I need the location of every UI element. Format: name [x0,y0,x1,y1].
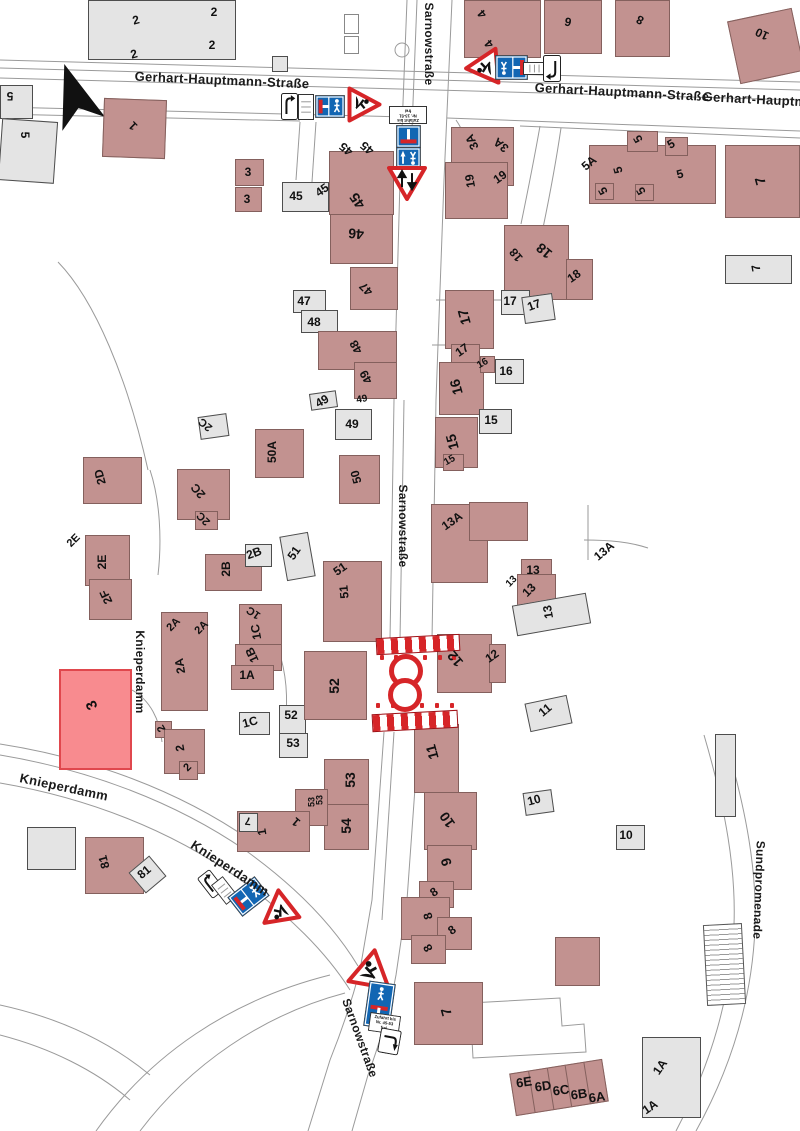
building-number-label: 45 [337,140,355,158]
building-number-label: 15 [443,433,461,452]
building-number-label: 54 [339,818,353,834]
building-number-label: 8 [421,911,434,921]
building-number-label: 12 [445,649,466,670]
street-name-label: Sarnowstraße [340,997,380,1079]
building-number-label: 5 [634,185,648,197]
building-number-label: 2E [96,555,108,570]
building-number-label: 9 [563,15,572,28]
building-number-label: 8 [446,923,458,937]
building-number-label: 9 [438,856,454,867]
building-number-label: 2A [165,616,183,634]
building-number-label: 4 [475,8,488,21]
building-number-label: 50 [348,469,363,485]
building-number-label: 2 [156,723,169,734]
building-number-label: 2C [197,415,215,432]
building-number-label: 5 [665,137,677,151]
building-number-label: 15 [484,414,497,426]
building-number-label: 17 [503,295,516,307]
building-number-label: 7 [752,175,768,186]
building-number-label: 2 [209,39,216,51]
building-number-label: 6E [515,1074,533,1089]
building-number-label: 2C [188,481,207,500]
street-name-label: Knieperdamm [19,771,110,802]
building-number-label: 8 [634,13,645,27]
building-number-label: 1 [290,815,303,828]
building-number-label: 48 [347,338,364,356]
construction-site-map: Zufahrt bisNr. 13-51frei Zufahrt bisNr. … [0,0,800,1131]
building-number-label: 5 [675,167,685,180]
building-number-label: 51 [337,585,350,599]
street-name-label: Knieperdamm [134,630,146,713]
building-number-label: 6C [552,1082,570,1097]
building-number-label: 18 [565,267,583,284]
building-number-label: 52 [327,678,341,694]
building-number-label: 17 [526,297,543,313]
building-number-label: 49 [357,368,374,386]
street-name-label: Sarnowstraße [423,3,435,86]
building-number-label: 2 [174,744,187,753]
street-name-label: Gerhart-Hauptmann-Straße [134,70,309,91]
building-number-label: 13A [440,510,465,532]
building-number-label: 45 [347,191,367,212]
building-number-label: 15 [443,454,458,468]
building-number-label: 8 [421,942,435,954]
building-number-label: 48 [307,316,320,328]
building-number-label: 53 [343,772,357,788]
street-name-label: Gerhart-Hauptmann-Straße [702,90,800,112]
building-number-label: 5 [596,185,610,197]
building-number-label: 13A [592,539,617,562]
building-number-label: 49 [356,394,369,406]
building-number-label: 18 [507,246,525,264]
building-number-label: 13 [505,575,520,590]
building-number-label: 2 [131,13,141,26]
building-number-label: 3A [463,133,480,152]
building-number-label: 2 [129,47,139,60]
building-number-label: 52 [284,709,297,721]
building-number-label: 2B [245,545,264,562]
building-number-label: 1A [239,669,254,681]
building-number-label: 81 [96,854,111,870]
building-number-label: 2 [211,6,218,18]
building-number-label: 46 [348,226,365,241]
building-number-label: 53 [286,737,299,749]
building-number-label: 19 [463,173,477,188]
building-number-label: 5A [579,153,598,172]
building-number-label: 5 [611,165,624,175]
building-number-label: 18 [534,241,555,262]
building-number-label: 1A [651,1057,670,1076]
building-number-label: 3 [245,166,252,178]
building-number-label: 17 [455,308,473,327]
building-number-label: 1C [249,623,263,640]
building-number-label: 13 [520,581,538,599]
building-number-label: 6A [588,1089,606,1104]
building-number-label: 50A [266,441,278,463]
street-name-label: Sarnowstraße [397,485,409,568]
building-number-label: 17 [453,341,471,358]
building-number-label: 1C [245,603,263,620]
labels-layer: 2222449810551334545454545464747484849494… [0,0,800,1131]
building-number-label: 5 [19,132,31,139]
building-number-label: 11 [423,743,440,761]
building-number-label: 3 [244,193,251,205]
building-number-label: 2B [220,561,232,576]
building-number-label: 49 [345,418,358,430]
building-number-label: 7 [438,1006,454,1017]
building-number-label: 2E [65,532,82,549]
building-number-label: 47 [297,295,310,307]
building-number-label: 6B [570,1086,588,1101]
building-number-label: 19 [491,168,509,185]
building-number-label: 1C [241,714,259,730]
building-number-label: 81 [135,863,153,881]
building-number-label: 7 [750,264,763,273]
building-number-label: 2 [182,762,194,774]
building-number-label: 13 [541,604,555,619]
building-number-label: 53 [316,795,325,805]
street-name-label: Knieperdamm [189,838,272,898]
building-number-label: 10 [526,792,542,807]
building-number-label: 5 [631,133,645,145]
building-number-label: 8 [428,885,440,899]
building-number-label: 45 [313,181,331,198]
building-number-label: 47 [357,280,375,298]
building-number-label: 1B [243,646,260,665]
building-number-label: 45 [289,190,302,202]
building-number-label: 11 [536,701,553,718]
building-number-label: 2A [173,657,187,674]
building-number-label: 2A [193,619,211,637]
building-number-label: 51 [285,544,302,562]
building-number-label: 49 [313,392,331,409]
building-number-label: 13 [526,564,539,576]
building-number-label: 2F [98,588,115,606]
building-number-label: 3A [491,135,510,154]
building-number-label: 2C [195,509,213,527]
building-number-label: 10 [437,810,457,831]
building-number-label: 1 [256,828,269,837]
street-name-label: Sundpromenade [751,841,766,940]
building-number-label: 10 [619,829,632,841]
building-number-label: 6D [534,1078,552,1093]
building-number-label: 2D [92,468,108,486]
building-number-label: 3 [83,698,100,712]
building-number-label: 12 [483,647,501,664]
building-number-label: 45 [358,139,376,157]
building-number-label: 7 [244,814,251,825]
building-number-label: 5 [7,90,14,102]
building-number-label: 1A [640,1098,659,1117]
building-number-label: 4 [482,38,495,51]
building-number-label: 16 [499,365,512,377]
street-name-label: Gerhart-Hauptmann-Straße [534,81,709,103]
building-number-label: 16 [476,357,491,371]
building-number-label: 51 [331,560,349,577]
building-number-label: 1 [126,119,139,132]
building-number-label: 16 [447,378,465,397]
building-number-label: 10 [753,26,770,43]
